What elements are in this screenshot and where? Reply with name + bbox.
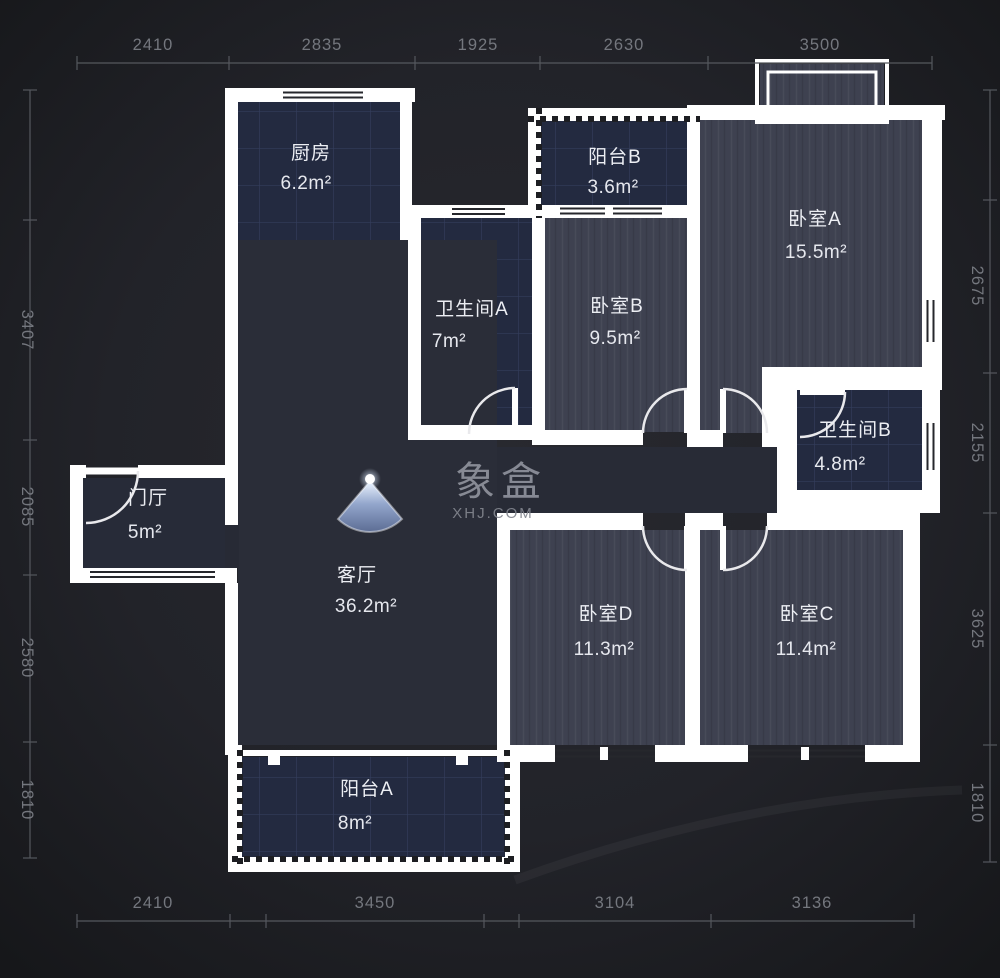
wall [228, 750, 520, 756]
wall [777, 490, 940, 513]
wall [700, 430, 723, 447]
room-balcony-b-name: 阳台B [588, 146, 642, 168]
wall [762, 367, 942, 390]
dim-top-1: 2835 [302, 36, 343, 54]
room-bedroom-a-area: 15.5m² [785, 242, 847, 263]
floor-plan-viewer: 厨房 6.2m² 阳台B 3.6m² 卧室A 15.5m² 卫生间A 7m² 卧… [0, 0, 1000, 978]
room-bathroom-b-area: 4.8m² [814, 454, 865, 475]
wall [922, 105, 942, 387]
entry-passage-floor [225, 525, 239, 568]
wall [456, 756, 468, 765]
wall [903, 513, 920, 762]
wall [70, 465, 83, 583]
dim-bottom-3: 3136 [792, 894, 833, 912]
wall [225, 583, 238, 755]
room-bedroom-b-area: 9.5m² [589, 328, 640, 349]
bedroom-a-floor-nook [700, 367, 772, 433]
watermark-logo: 象盒 [455, 460, 547, 504]
floor-plan-svg: 厨房 6.2m² 阳台B 3.6m² 卧室A 15.5m² 卫生间A 7m² 卧… [0, 0, 1000, 978]
bathroom-b-floor [797, 390, 922, 492]
bedroom-b-floor [545, 218, 687, 432]
balcony-a-floor [242, 757, 505, 857]
wall [497, 513, 510, 762]
room-bedroom-d-area: 11.3m² [574, 639, 635, 660]
room-balcony-a-name: 阳台A [340, 778, 394, 800]
room-bedroom-c-name: 卧室C [780, 603, 835, 625]
wall [532, 430, 643, 445]
watermark-site: XHJ.COM [452, 505, 534, 522]
dim-left-0: 3407 [18, 310, 36, 351]
room-bedroom-d-name: 卧室D [579, 603, 634, 625]
wall [408, 205, 700, 218]
dim-left-1: 2085 [18, 487, 36, 528]
room-kitchen-name: 厨房 [291, 142, 331, 164]
dim-bottom-2: 3104 [595, 894, 636, 912]
room-balcony-b-area: 3.6m² [587, 177, 638, 198]
wall [767, 430, 777, 447]
dim-right-1: 2155 [968, 423, 986, 464]
wall [690, 105, 945, 120]
wall [225, 88, 415, 102]
dim-top-3: 2630 [604, 36, 645, 54]
room-balcony-a-area: 8m² [338, 813, 372, 834]
wall [408, 205, 421, 440]
wall [532, 205, 545, 445]
room-bathroom-b-name: 卫生间B [818, 419, 892, 441]
dim-bottom-1: 3450 [355, 894, 396, 912]
wall [70, 568, 237, 583]
room-kitchen-area: 6.2m² [280, 173, 331, 194]
room-bedroom-b-name: 卧室B [590, 295, 644, 317]
bedroom-c-floor [700, 530, 903, 745]
dim-right-2: 3625 [968, 609, 986, 650]
room-entry-area: 5m² [128, 522, 162, 543]
dim-top-0: 2410 [133, 36, 174, 54]
wall [225, 88, 238, 525]
room-entry-name: 门厅 [128, 487, 168, 509]
room-bedroom-c-area: 11.4m² [776, 639, 837, 660]
dim-right-0: 2675 [968, 266, 986, 307]
wall [655, 745, 748, 762]
room-bedroom-a-name: 卧室A [788, 208, 842, 230]
dim-right-3: 1810 [968, 783, 986, 824]
dim-bottom-0: 2410 [133, 894, 174, 912]
room-living-name: 客厅 [337, 564, 377, 586]
wall [268, 756, 280, 765]
dim-top-2: 1925 [458, 36, 499, 54]
room-bathroom-a-name: 卫生间A [435, 298, 509, 320]
bedroom-d-floor [510, 530, 685, 745]
wall [408, 425, 545, 440]
dim-left-3: 1810 [18, 780, 36, 821]
kitchen-floor [238, 88, 402, 240]
watermark: 象盒 XHJ.COM [452, 460, 547, 522]
dim-left-2: 2580 [18, 638, 36, 679]
wall [865, 745, 920, 762]
wall [138, 465, 237, 478]
room-living-area: 36.2m² [335, 596, 397, 617]
wall [767, 513, 920, 530]
dim-top-4: 3500 [800, 36, 841, 54]
room-bathroom-a-area: 7m² [432, 331, 466, 352]
